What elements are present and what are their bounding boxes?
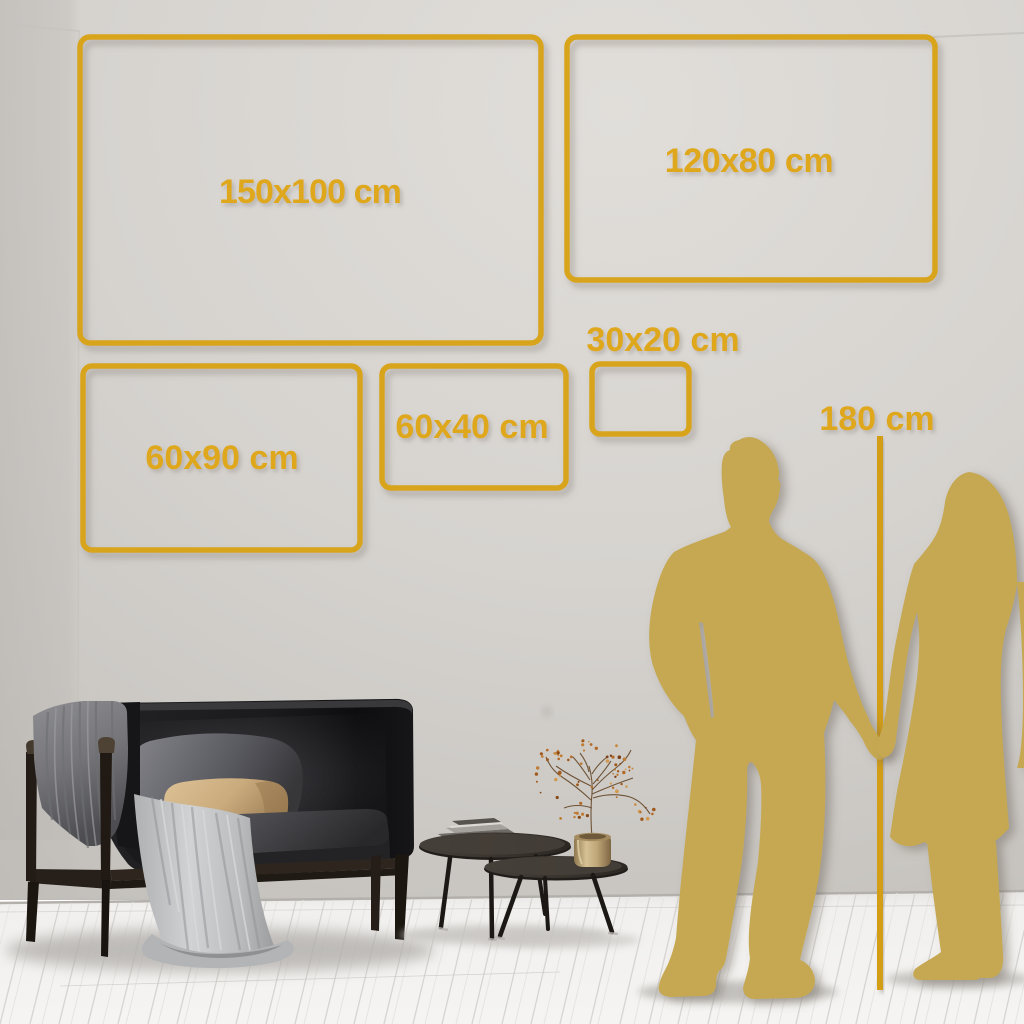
svg-text:120x80 cm: 120x80 cm [665,142,833,180]
svg-text:180 cm: 180 cm [819,400,934,438]
svg-text:30x20 cm: 30x20 cm [586,321,739,359]
svg-text:60x40 cm: 60x40 cm [395,408,548,446]
svg-text:150x100 cm: 150x100 cm [219,173,401,211]
svg-text:60x90 cm: 60x90 cm [145,439,298,477]
